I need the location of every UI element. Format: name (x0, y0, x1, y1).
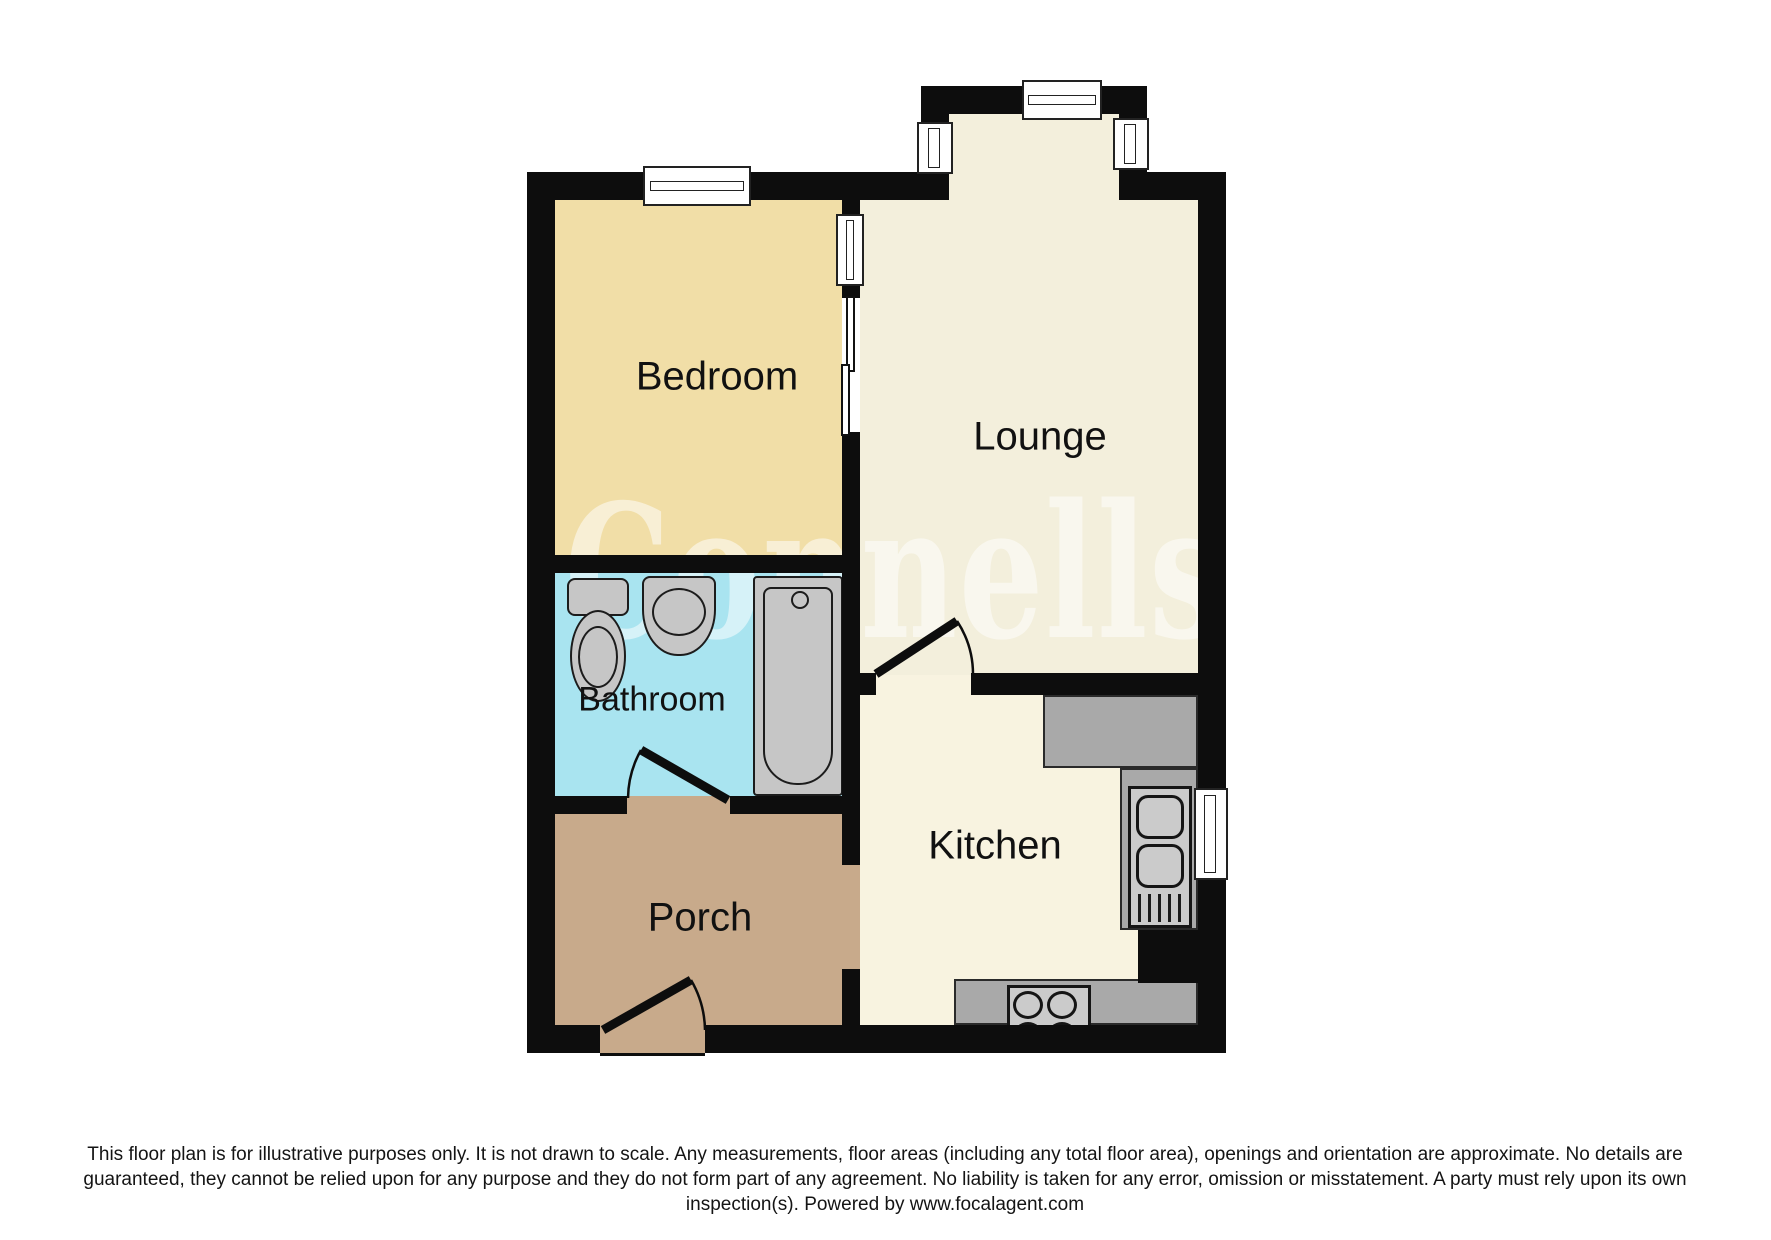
door-lounge-kitchen (876, 621, 973, 674)
door-swings (0, 0, 1771, 1240)
label-bedroom: Bedroom (636, 355, 798, 400)
door-bathroom (628, 750, 728, 800)
label-lounge: Lounge (973, 415, 1106, 460)
label-porch: Porch (648, 896, 753, 941)
label-bathroom: Bathroom (578, 681, 725, 720)
label-kitchen: Kitchen (928, 824, 1061, 869)
disclaimer-text: This floor plan is for illustrative purp… (35, 1142, 1735, 1217)
front-door (603, 980, 705, 1030)
floor-plan: Connells (0, 0, 1771, 1240)
